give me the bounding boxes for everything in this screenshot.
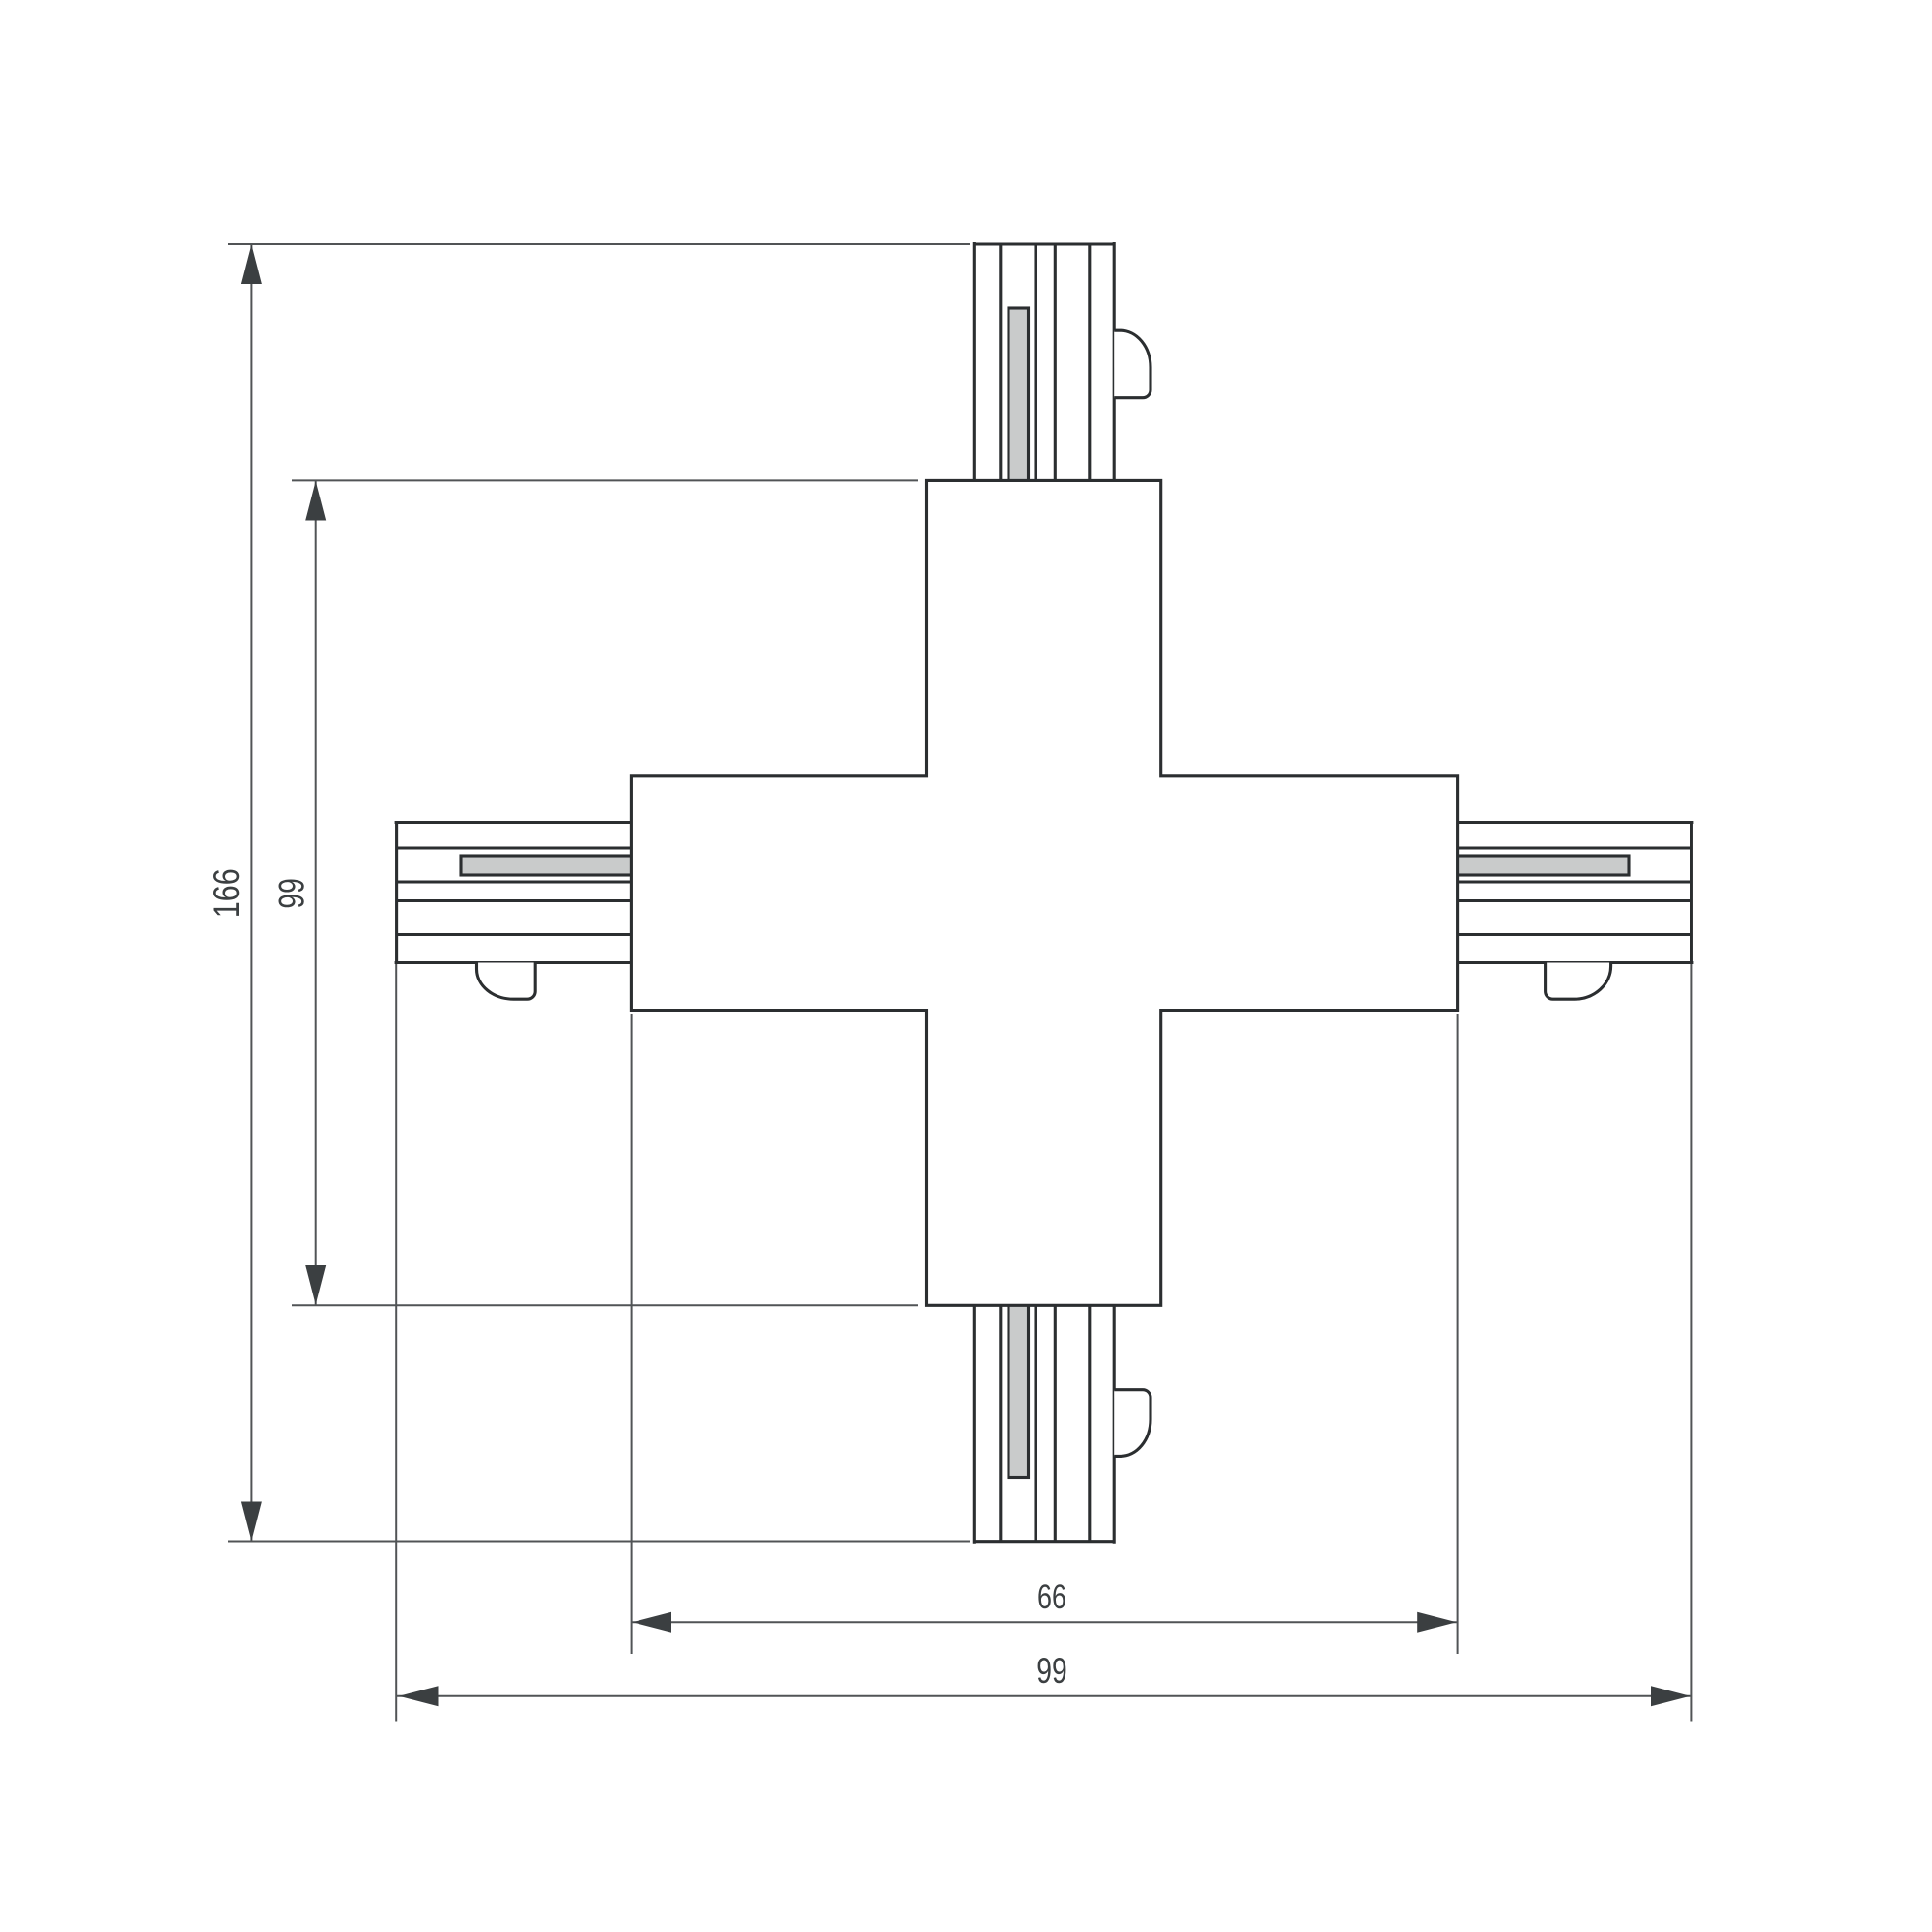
svg-text:166: 166: [207, 868, 246, 918]
svg-text:99: 99: [1037, 1651, 1067, 1690]
svg-text:66: 66: [1037, 1577, 1066, 1616]
svg-text:99: 99: [272, 878, 312, 909]
